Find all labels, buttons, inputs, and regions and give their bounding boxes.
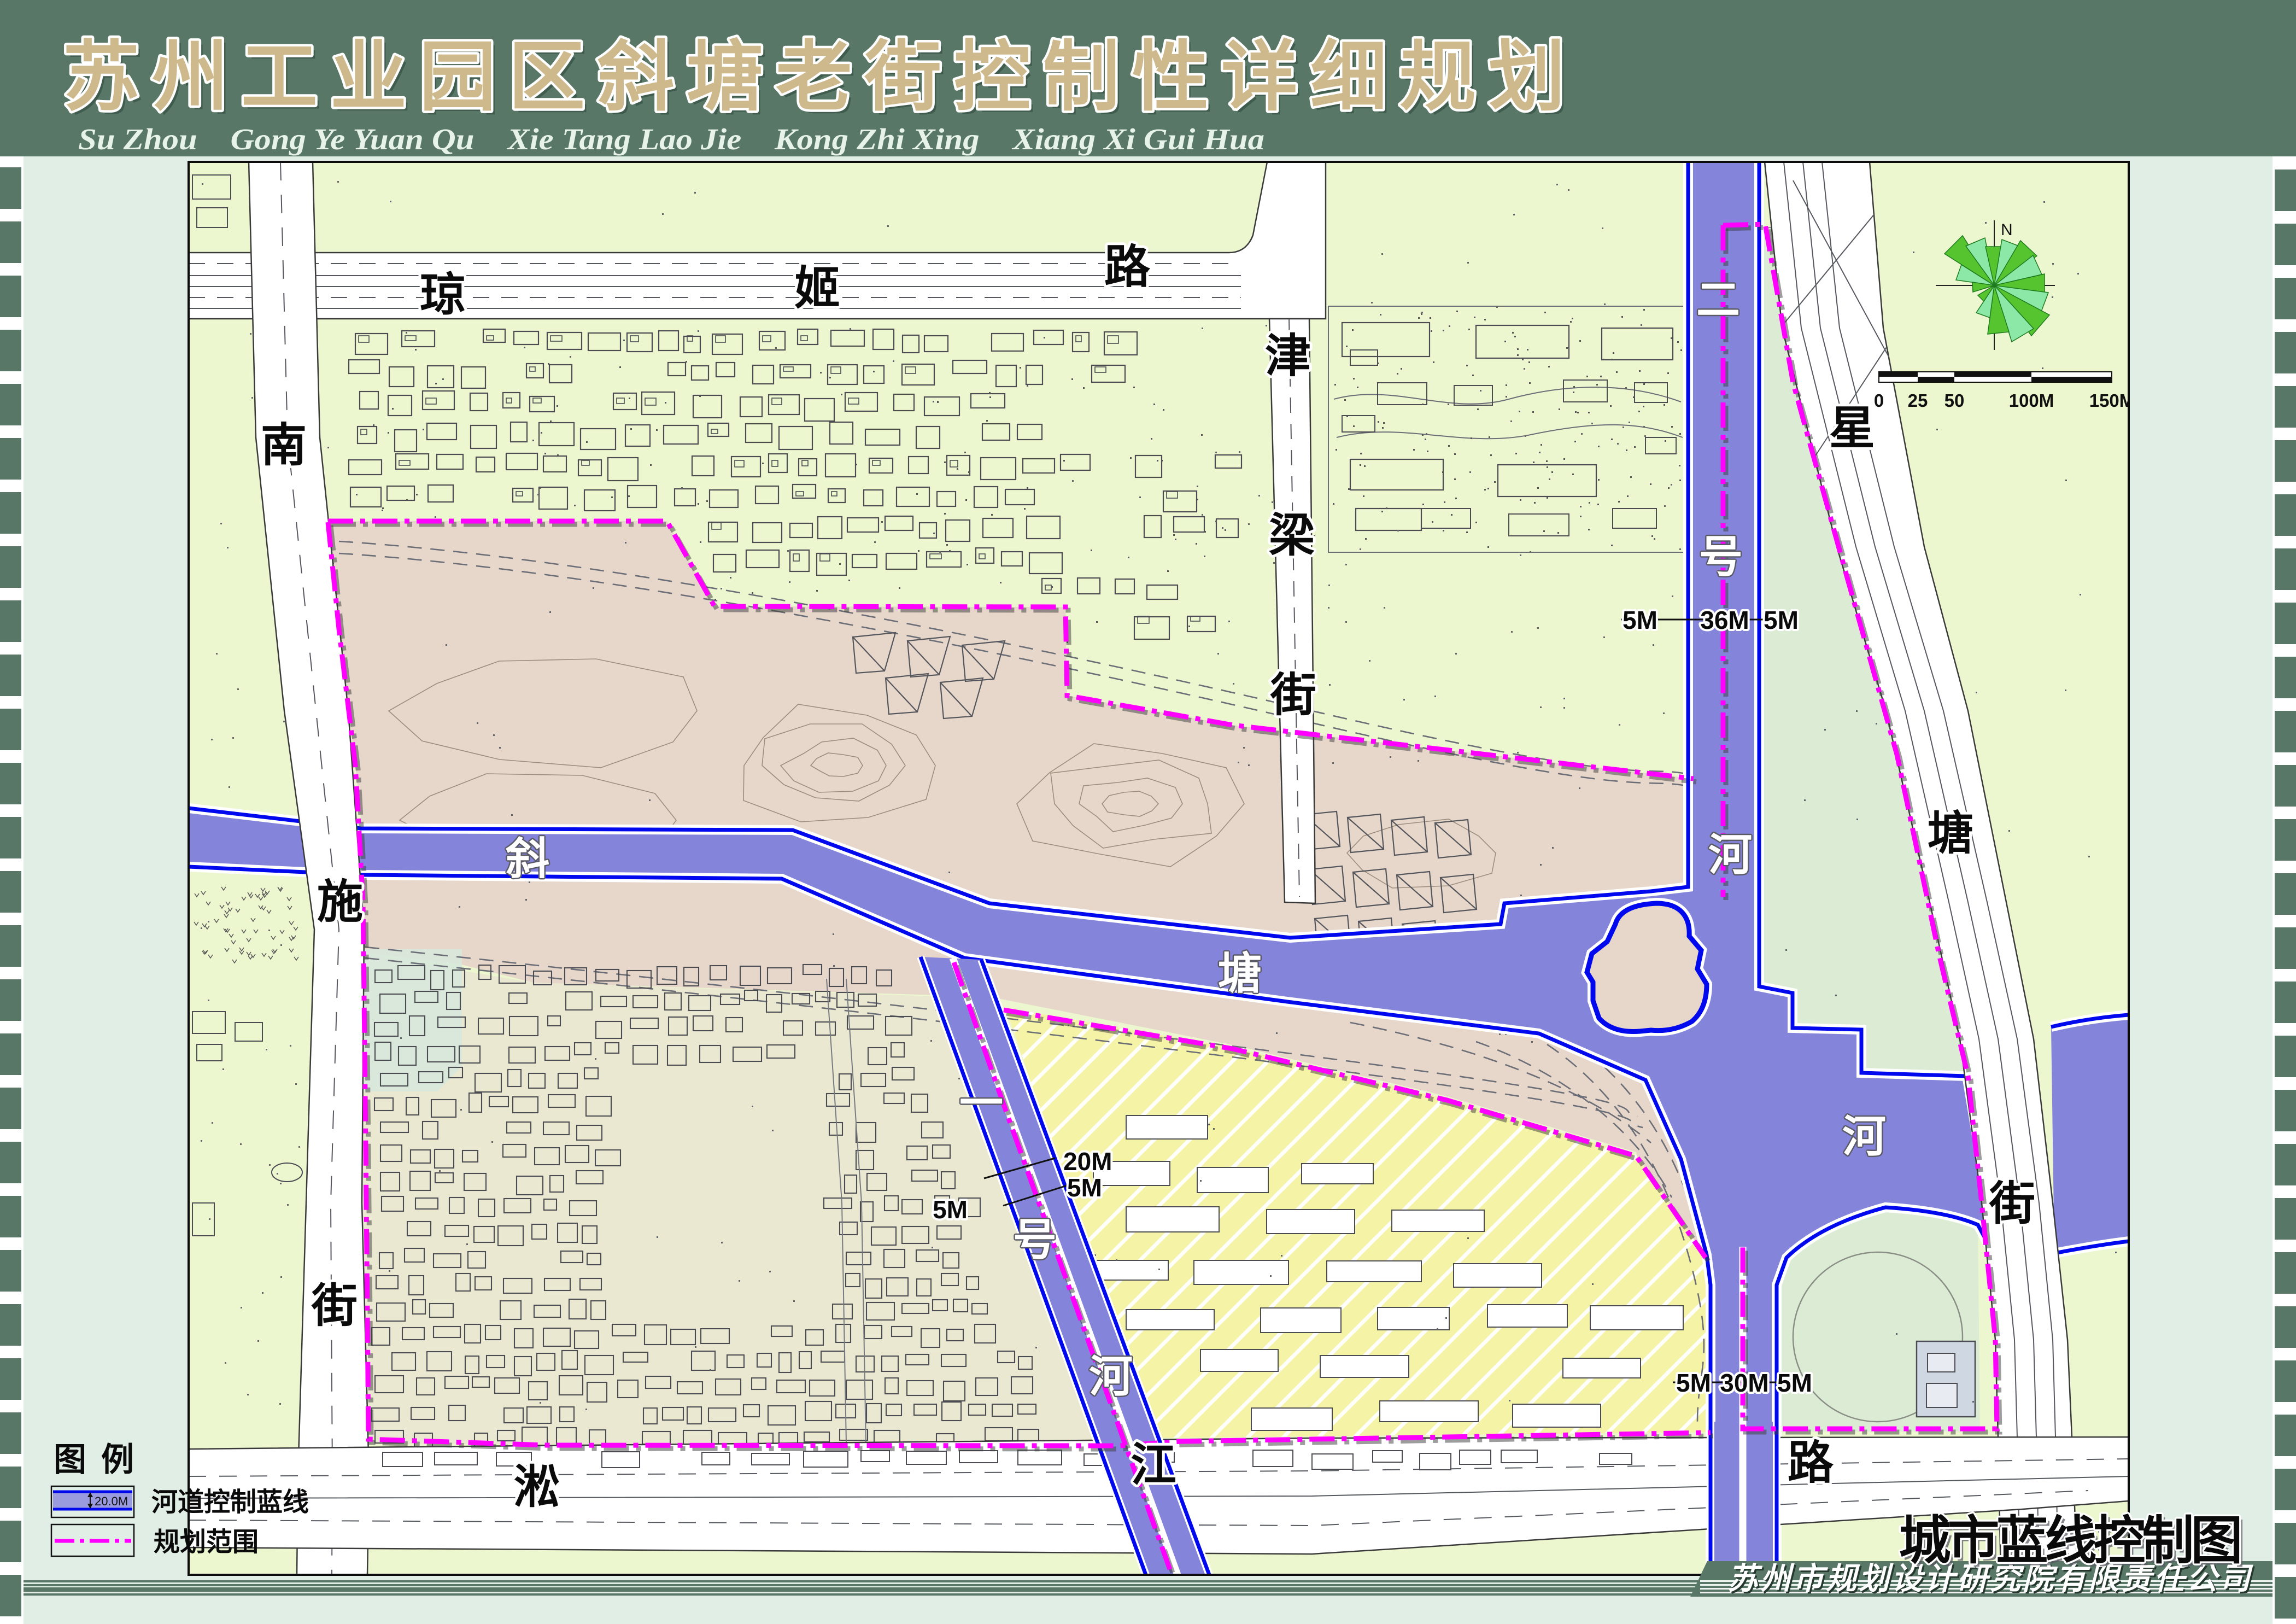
svg-text:20M: 20M — [1063, 1147, 1112, 1176]
svg-text:规划范围: 规划范围 — [154, 1528, 259, 1557]
svg-text:淞: 淞 — [514, 1461, 560, 1512]
svg-text:斜: 斜 — [506, 834, 549, 883]
svg-text:5M: 5M — [1623, 606, 1657, 634]
svg-text:路: 路 — [1104, 241, 1151, 293]
svg-text:20.0M: 20.0M — [95, 1494, 128, 1508]
svg-text:0: 0 — [1874, 390, 1884, 411]
svg-text:5M: 5M — [1067, 1173, 1102, 1202]
svg-text:施: 施 — [317, 876, 363, 927]
svg-text:150M: 150M — [2089, 390, 2135, 411]
svg-text:二: 二 — [1696, 276, 1740, 324]
svg-text:琼: 琼 — [420, 269, 466, 320]
svg-text:号: 号 — [1699, 533, 1743, 581]
svg-text:图例: 图例 — [54, 1441, 149, 1478]
svg-text:街: 街 — [311, 1280, 358, 1331]
svg-text:5M: 5M — [1676, 1369, 1711, 1397]
svg-text:姬: 姬 — [794, 262, 840, 314]
svg-text:津: 津 — [1265, 330, 1311, 382]
svg-text:河: 河 — [1089, 1352, 1133, 1401]
svg-text:路: 路 — [1788, 1437, 1834, 1488]
svg-text:苏州工业园区斜塘老街控制性详细规划: 苏州工业园区斜塘老街控制性详细规划 — [63, 34, 1578, 120]
svg-text:36M: 36M — [1700, 606, 1749, 634]
svg-text:江: 江 — [1131, 1439, 1176, 1491]
svg-text:Su Zhou Gong Ye Yuan Qu: Su Zhou Gong Ye Yuan Qu Xie Tang Lao Jie… — [78, 122, 1264, 156]
svg-text:塘: 塘 — [1928, 808, 1973, 859]
svg-text:南: 南 — [261, 419, 307, 471]
svg-text:N: N — [2001, 221, 2013, 239]
svg-text:河: 河 — [1842, 1112, 1886, 1161]
svg-text:号: 号 — [1013, 1216, 1057, 1264]
svg-text:城市蓝线控制图: 城市蓝线控制图 — [1899, 1512, 2239, 1570]
svg-text:河道控制蓝线: 河道控制蓝线 — [151, 1488, 309, 1517]
svg-text:25: 25 — [1908, 390, 1928, 411]
svg-text:星: 星 — [1829, 402, 1875, 454]
svg-text:100M: 100M — [2009, 390, 2054, 411]
svg-text:30M: 30M — [1720, 1369, 1768, 1397]
svg-text:5M: 5M — [933, 1195, 968, 1224]
svg-text:一: 一 — [959, 1079, 1003, 1128]
svg-text:街: 街 — [1989, 1178, 2035, 1229]
svg-text:塘: 塘 — [1218, 949, 1262, 998]
svg-text:5M: 5M — [1764, 606, 1799, 634]
svg-text:梁: 梁 — [1269, 510, 1315, 561]
svg-text:5M: 5M — [1777, 1369, 1812, 1397]
svg-text:50: 50 — [1944, 390, 1965, 411]
svg-text:河: 河 — [1708, 831, 1752, 879]
svg-text:街: 街 — [1270, 669, 1316, 721]
